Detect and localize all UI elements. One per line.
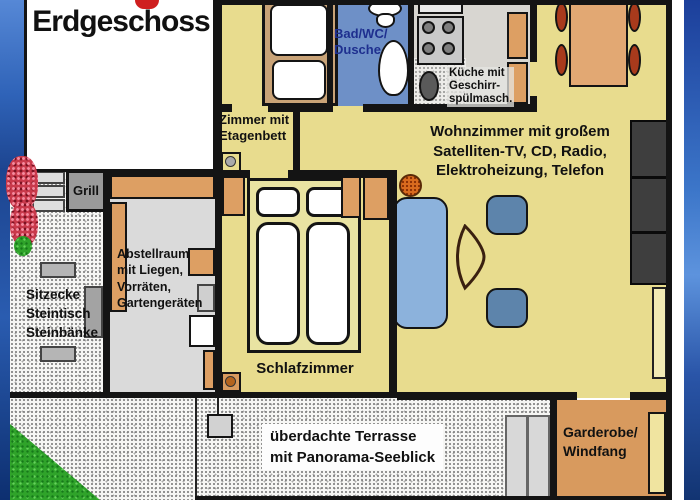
entry-closet (648, 412, 666, 494)
terrace-label: überdachte Terrasse mit Panorama-Seeblic… (262, 424, 443, 470)
wall (293, 104, 300, 178)
storage-shelf (203, 350, 215, 390)
bunk-room-label: Zimmer mit Etagenbett (219, 112, 289, 144)
wall (215, 0, 672, 5)
floorplan-image: Erdgeschoss Zimmer mit Etagenbett Bad/WC… (0, 0, 700, 500)
roof-column (207, 414, 233, 438)
entry-label: Garderobe/ Windfang (563, 423, 638, 461)
right-sky-band (684, 0, 700, 500)
stove-burner-icon (442, 42, 455, 55)
bottom-edge-line (195, 496, 672, 500)
terrace-edge-line (195, 398, 197, 500)
wall (103, 168, 110, 398)
tv-cabinet-divider (630, 176, 668, 179)
wall (327, 0, 333, 106)
storage-shelf (110, 175, 215, 199)
left-sky-band-lower (0, 168, 10, 500)
wall (215, 104, 232, 112)
tv-cabinet-divider (630, 231, 668, 234)
entry-step (505, 415, 528, 500)
armchair (486, 195, 528, 235)
coffee-table-icon (453, 224, 489, 292)
stove-burner-icon (422, 42, 435, 55)
bed-pillow (256, 187, 300, 217)
wall (288, 170, 397, 178)
tv-cabinet (630, 120, 668, 285)
dining-chair-icon (628, 2, 641, 32)
dining-chair-icon (628, 44, 641, 76)
sofa (393, 197, 448, 329)
dining-table (569, 0, 628, 87)
kitchen-counter (507, 12, 528, 59)
nightstand (341, 176, 361, 218)
wall (389, 170, 397, 398)
left-sky-band (0, 0, 26, 172)
storage-label: Abstellraum mit Liegen, Vorräten, Garten… (117, 246, 202, 311)
wall (550, 398, 557, 500)
entry-step (527, 415, 550, 500)
window-strip (652, 287, 667, 379)
dining-chair-icon (555, 44, 568, 76)
garden-step (32, 199, 65, 212)
wall (408, 0, 414, 106)
right-white-strip (672, 0, 684, 500)
bunk-bed-mattress (270, 4, 328, 56)
sink-icon (419, 71, 439, 101)
wall (10, 392, 397, 398)
wall (268, 104, 333, 112)
washbasin-bowl-icon (225, 156, 236, 167)
seating-area-label: Sitzecke Steintisch Steinbänke (26, 286, 98, 343)
stove-burner-icon (422, 21, 435, 34)
stone-bench (40, 262, 76, 278)
armchair (486, 288, 528, 328)
bedroom-label: Schlafzimmer (230, 360, 380, 378)
wall (215, 0, 222, 398)
wall (630, 392, 672, 400)
grill-label: Grill (66, 183, 106, 199)
living-room-label: Wohnzimmer mit großem Satelliten-TV, CD,… (420, 122, 620, 181)
stove-burner-icon (442, 21, 455, 34)
bed-mattress (256, 222, 300, 345)
plant-icon (399, 174, 422, 197)
stone-bench (40, 346, 76, 362)
storage-freezer (189, 315, 215, 347)
page-title: Erdgeschoss (30, 4, 212, 41)
wall (530, 0, 537, 62)
flower-bush-leaves (14, 236, 32, 256)
bed-mattress (306, 222, 350, 345)
wall (666, 0, 672, 500)
side-cabinet (363, 174, 389, 220)
bathroom-label: Bad/WC/ Dusche (334, 26, 387, 58)
dining-chair-icon (555, 2, 568, 32)
bunk-bed-mattress (272, 60, 326, 100)
kitchen-label: Küche mit Geschirr- spülmasch. (447, 67, 514, 107)
nightstand (222, 176, 245, 216)
